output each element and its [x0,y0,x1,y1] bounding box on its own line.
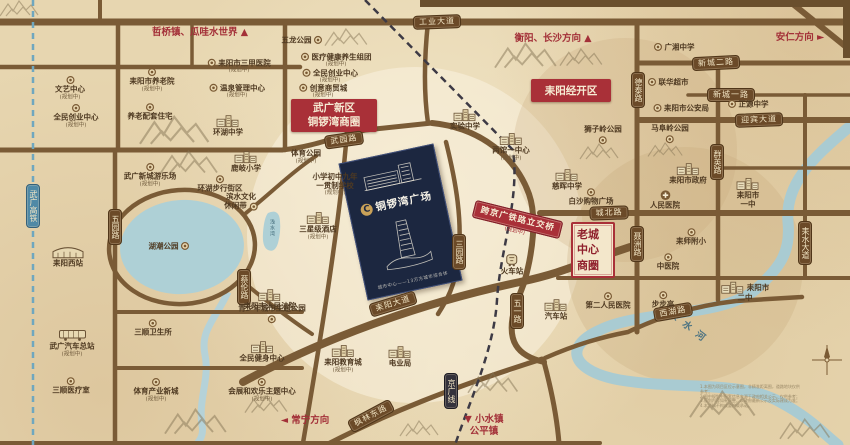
poi-label: 环湖步行街区 [198,175,243,194]
direction-label: ▼ 小水镇公平镇 [464,414,503,438]
building-icon [216,115,240,128]
building-icon [544,299,568,312]
poi-medallion-icon [666,134,675,143]
poi-medallion-icon [301,52,310,61]
poi-medallion-icon [72,104,81,113]
direction-label: 哲桥镇、瓜哇水世界 ▲ [152,27,248,39]
poi-label: 耒阳市三甲医院(规划中) [207,58,271,73]
poi-medallion-icon [216,175,225,184]
building-icon [676,163,700,176]
building-icon [250,341,274,354]
poi-label: 汽车站 [544,299,568,322]
poi-medallion-icon [664,253,673,262]
jingkai-district-label: 耒阳经开区 [531,83,611,98]
poi-label: 耒阳市养老院(规划中) [130,68,175,93]
poi-label: 体育公园(规划中) [291,150,321,165]
poi-label: 鹿岐小学 [231,151,261,174]
road-name-banner: 德泰路 [631,72,645,108]
poi-label: 全民创业中心(规划中) [54,104,99,129]
building-icon [331,345,355,358]
direction-label: ◄ 常宁方向 [281,415,330,427]
poi-label: 滨水文化休闲带 [224,193,258,211]
poi-medallion-icon [302,68,311,77]
bus-icon [58,329,86,342]
poi-label: 联华超市 [648,77,689,86]
wuguang-district-box: 武广新区 铜锣湾商圈 [291,99,377,132]
poi-label: 耒师附小 [676,228,706,247]
poi-medallion-icon [687,228,696,237]
poi-label: 会展和欢乐主题中心(规划中) [228,378,296,403]
poi-label: 武广新城游乐场(规划中) [124,163,177,188]
poi-medallion-icon [648,77,657,86]
road-name-banner: 五一路 [510,293,524,329]
road-name-banner: 新城二路 [692,55,741,71]
poi-label: 养老配套住宅 [128,103,173,122]
poi-label: 创意商贸城(规划中) [299,83,348,98]
poi-medallion-icon [258,378,267,387]
poi-label: 狮子岭公园 [584,126,622,145]
poi-label: 武广汽车总站(规划中) [50,329,95,358]
poi-label: 广湘中学 [654,42,695,51]
poi-label: 小学初中九年一贯制学校(规划中) [313,173,358,197]
train-icon [505,254,519,267]
road-name-banner: 城北路 [589,205,628,220]
poi-label: 耒阳市公安局 [653,103,709,112]
poi-label: 三顺医疗室 [52,377,90,396]
railway-name-banner: 京广线 [444,373,458,409]
building-icon [234,151,258,164]
poi-medallion-icon [604,292,613,301]
tower-sketch-icon [373,213,437,275]
railway-name-banner: 武广高铁 [26,184,40,228]
poi-label: 实验中学 [450,109,480,132]
oldtown-row: 老城 [577,229,609,240]
road-name-banner: 工业大道 [413,14,461,30]
poi-label: 全民创业中心(规划中) [302,68,358,83]
oldtown-row: 中心 [577,244,609,255]
poi-medallion-icon [209,83,218,92]
poi-label: 第二人民医院 [586,292,631,311]
building-icon [736,177,760,190]
poi-medallion-icon [659,291,668,300]
poi-medallion-icon [66,76,75,85]
poi-label: 全民健身中心 [240,341,285,364]
poi-medallion-icon [148,68,157,77]
poi-medallion-icon [146,103,155,112]
poi-label: 电业局 [388,346,412,369]
poi-medallion-icon [587,188,596,197]
poi-medallion-icon [653,103,662,112]
poi-medallion-icon [268,314,277,323]
poi-medallion-icon [181,241,190,250]
road-name-banner: 三园路 [452,234,466,270]
location-map: C 铜锣湾广场 城市中心——13万方城市综合体 武广新区 铜锣湾商圈 耒阳经开区… [0,0,850,445]
poi-medallion-icon [299,83,308,92]
road-name-banner: 五园路 [108,209,122,245]
jingkai-district-box: 耒阳经开区 [531,79,611,102]
poi-label: 中医院 [657,253,680,272]
poi-label: 步步高 [652,291,675,310]
direction-label: 安仁方向 ► [776,32,825,44]
right-frame-band [843,0,850,58]
building-icon [258,289,282,302]
poi-medallion-icon [654,42,663,51]
poi-label: 环湖中学 [213,115,243,138]
disclaimer-line: 4.本资料不构成要约或承诺。 [700,404,800,409]
hospital-cross-icon [660,190,671,201]
poi-label: 三星级酒店(规划中) [299,212,337,241]
direction-label: 衡阳、长沙方向 ▲ [514,33,591,45]
train-station-icon [50,244,86,259]
road-name-banner: 聂洲路 [630,226,644,262]
poi-label: 正源中学 [728,99,769,108]
building-icon [721,281,745,294]
pond-name-label: 浅水湾 [269,219,276,237]
poi-label: 三顺卫生所 [134,319,172,338]
oldtown-row: 商圈 [577,260,609,271]
building-icon [388,346,412,359]
mall-sketch-icon [358,158,424,194]
poi-label: 体育产业新城(规划中) [134,378,179,403]
poi-label: 医疗健康养生组团(规划中) [301,52,372,67]
building-icon [453,109,477,122]
poi-medallion-icon [249,202,258,211]
poi-label: 温泉管理中心(规划中) [209,83,265,98]
poi-label: 人民医院 [650,190,680,211]
road-name-banner: 迎宾大道 [735,112,783,128]
poi-medallion-icon [207,58,216,67]
project-name: 铜锣湾广场 [374,188,433,215]
oldtown-district-box: 老城 中心 商圈 [571,222,615,278]
poi-medallion-icon [728,99,737,108]
building-icon [499,133,523,146]
poi-label: 耒阳市政府 [669,163,707,186]
poi-medallion-icon [152,378,161,387]
project-logo-coin: C [360,202,374,216]
poi-medallion-icon [314,35,323,44]
poi-medallion-icon [67,377,76,386]
poi-label: 耒阳教育城(规划中) [324,345,362,374]
poi-label: 两馆一中心(规划中) [492,133,530,162]
poi-label: 青少年城市主题公园 [238,305,306,324]
wuguang-district-line2: 铜锣湾商圈 [291,116,377,130]
poi-medallion-icon [599,135,608,144]
poi-label: 耒阳西站 [50,244,86,269]
poi-label: 湖潮公园 [149,241,190,250]
poi-label: 白沙购物广场 [569,188,614,207]
compass-icon [812,345,842,375]
wuguang-district-line1: 武广新区 [291,102,377,116]
road-name-banner: 群英路 [710,144,724,180]
poi-label: 五龙公园 [282,35,323,44]
poi-label: 马阜岭公园 [651,125,689,144]
road-name-banner: 耒水大道 [798,221,812,265]
poi-label: 耒阳市一中 [736,177,760,208]
top-frame-band [420,0,850,7]
poi-label: 文艺中心(规划中) [55,76,85,101]
poi-medallion-icon [146,163,155,172]
building-icon [306,212,330,225]
poi-medallion-icon [149,319,158,328]
building-icon [555,169,579,182]
poi-label: 火车站 [501,254,524,277]
map-disclaimer: 1.本图为项目区位示意图，非精准距离图，道路地块仅供参考；2.图中规划中配套信息… [700,385,800,409]
poi-label: 耒阳市二中 [721,281,770,303]
